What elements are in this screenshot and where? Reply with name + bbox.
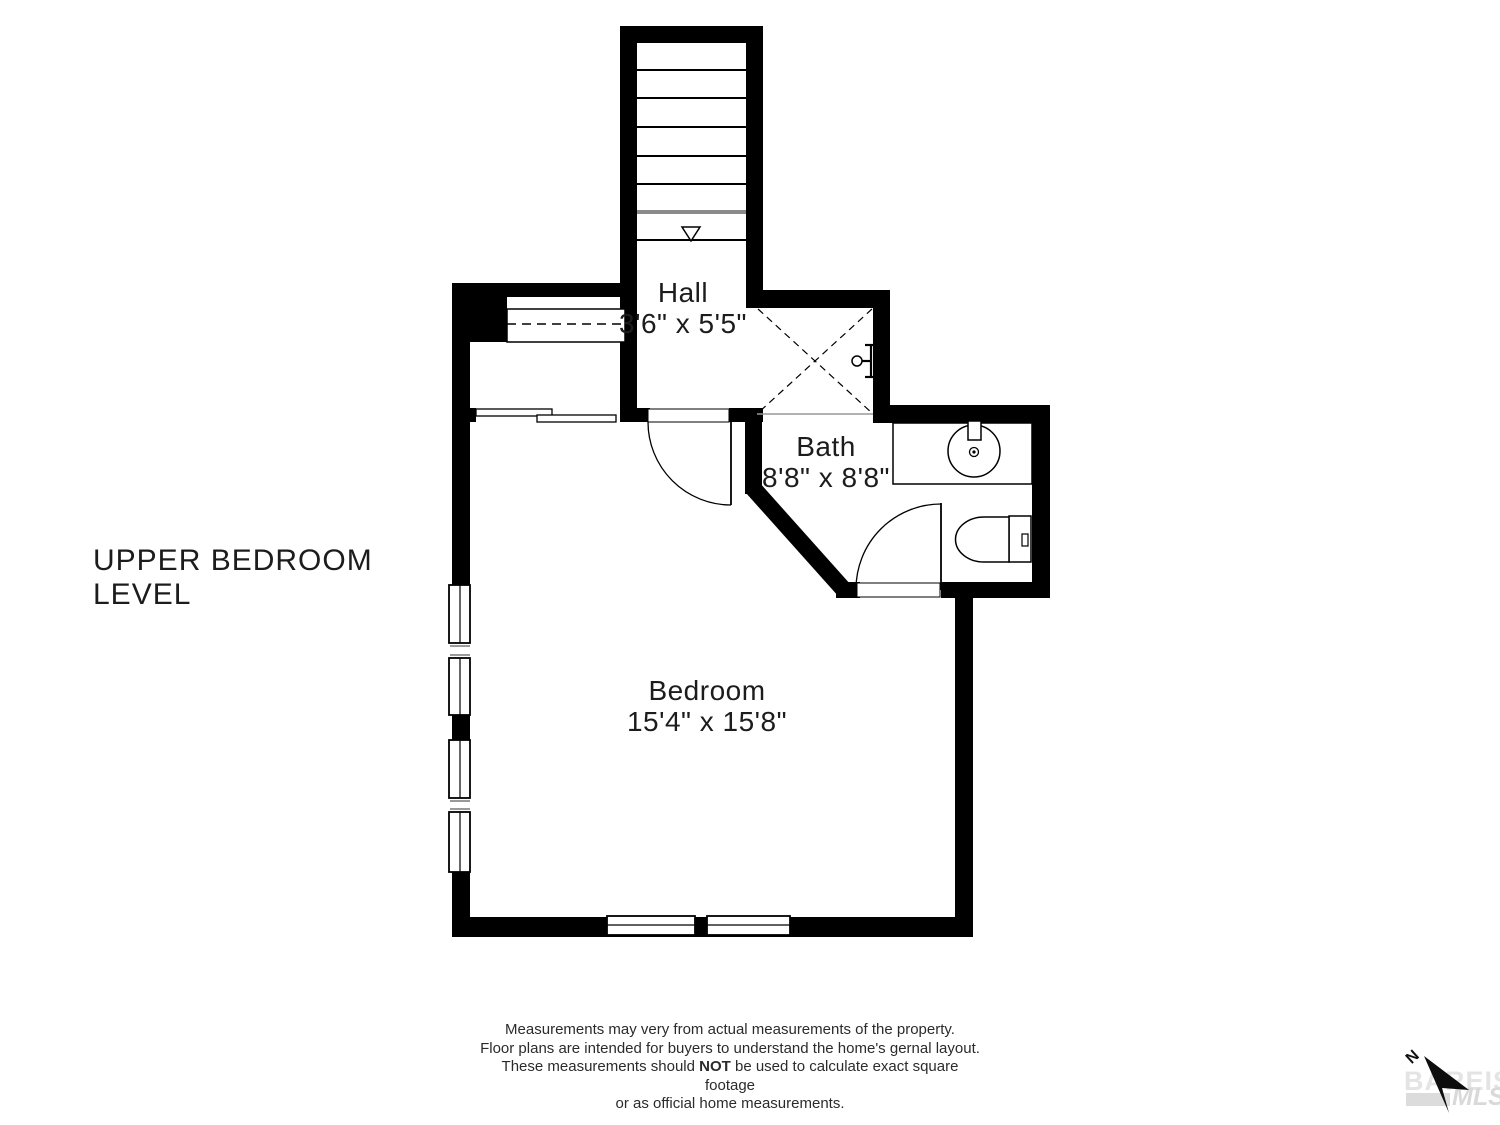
- sink-faucet-icon: [968, 421, 981, 440]
- hall-label: Hall 3'6" x 5'5": [619, 277, 747, 339]
- staircase: [637, 70, 746, 240]
- stair-top-wall: [620, 26, 763, 43]
- bedroom-left-wall-mid: [452, 714, 470, 741]
- disclaimer-line3: These measurements should NOT be used to…: [475, 1058, 985, 1095]
- shower-handle-icon: [852, 356, 862, 366]
- bath-right-wall: [1032, 405, 1050, 598]
- sink-drain-dot: [972, 450, 975, 453]
- bedroom-dimensions: 15'4" x 15'8": [627, 706, 787, 737]
- disclaimer: Measurements may very from actual measur…: [475, 1021, 985, 1114]
- toilet-flush-icon: [1022, 534, 1028, 546]
- toilet-bowl: [956, 517, 1009, 562]
- bedroom-door-arc: [648, 422, 731, 505]
- page-title-line2: LEVEL: [93, 578, 373, 612]
- bedroom-left-wall-upper: [452, 294, 470, 586]
- disclaimer-line2: Floor plans are intended for buyers to u…: [475, 1040, 985, 1059]
- hall-dimensions: 3'6" x 5'5": [619, 308, 747, 339]
- bath-vanity-wall: [873, 405, 1050, 423]
- closet: [507, 309, 625, 342]
- window-glass-lines: [460, 585, 790, 925]
- bath-door-arc: [856, 504, 941, 589]
- bedroom-right-wall: [955, 592, 973, 937]
- disclaimer-line1: Measurements may very from actual measur…: [475, 1021, 985, 1040]
- page-title-line1: UPPER BEDROOM: [93, 544, 373, 578]
- north-label: N: [1403, 1047, 1423, 1067]
- bedroom-door-threshold: [648, 409, 729, 422]
- stair-right-wall: [746, 26, 763, 292]
- bath-dimensions: 8'8" x 8'8": [762, 462, 890, 493]
- page-title: UPPER BEDROOM LEVEL: [93, 544, 373, 612]
- bedroom-wall-end-nub: [464, 408, 476, 422]
- bedroom-name: Bedroom: [627, 675, 787, 706]
- bath-label: Bath 8'8" x 8'8": [762, 431, 890, 493]
- sliding-door-panel-2: [537, 415, 616, 422]
- disclaimer-line4: or as official home measurements.: [475, 1095, 985, 1114]
- toilet: [956, 516, 1031, 562]
- stair-left-wall: [620, 26, 637, 422]
- bath-door-threshold: [857, 583, 940, 597]
- bath-diagonal-wall: [752, 487, 845, 591]
- disclaimer-line3-suffix: be used to calculate exact square footag…: [705, 1058, 959, 1094]
- hall-bottom-wall-left: [620, 408, 650, 422]
- bath-top-wall: [746, 290, 890, 308]
- shower: [757, 309, 877, 414]
- windows: [449, 585, 790, 935]
- bedroom-label: Bedroom 15'4" x 15'8": [627, 675, 787, 737]
- floor-plan-page: BAREIS® MLS: [0, 0, 1500, 1125]
- hall-name: Hall: [619, 277, 747, 308]
- disclaimer-line3-prefix: These measurements should: [502, 1058, 700, 1075]
- hall-bottom-wall-right: [729, 408, 763, 422]
- stair-direction-arrow-icon: [682, 227, 700, 241]
- bath-name: Bath: [762, 431, 890, 462]
- shower-right-wall: [873, 290, 890, 407]
- disclaimer-line3-bold: NOT: [699, 1058, 731, 1075]
